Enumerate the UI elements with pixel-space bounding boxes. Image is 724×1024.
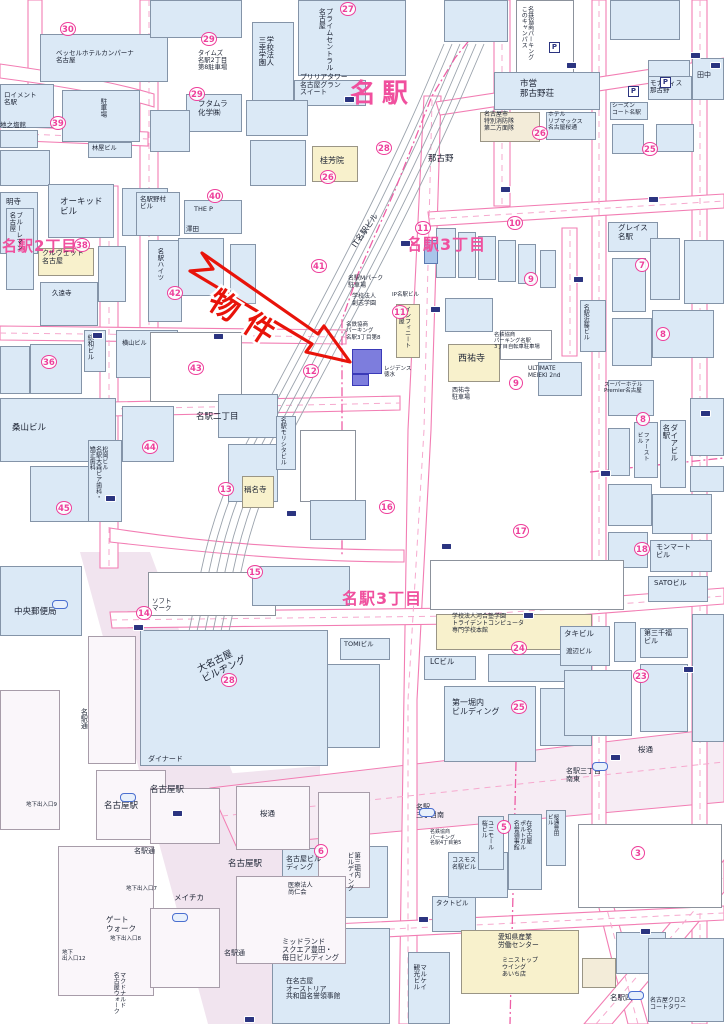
block-number-badge: 39 <box>50 116 66 130</box>
block-number-badge: 45 <box>56 501 72 515</box>
block-number-badge: 18 <box>634 542 650 556</box>
block-number-badge: 36 <box>41 355 57 369</box>
block-number-badge: 26 <box>320 170 336 184</box>
block-number-badge: 12 <box>303 364 319 378</box>
block-numbers-layer: 3029292728262625403938424143364445131211… <box>0 0 724 1024</box>
block-number-badge: 28 <box>221 673 237 687</box>
block-number-badge: 40 <box>207 189 223 203</box>
block-number-badge: 27 <box>340 2 356 16</box>
block-number-badge: 3 <box>631 846 645 860</box>
block-number-badge: 28 <box>376 141 392 155</box>
block-number-badge: 38 <box>74 238 90 252</box>
block-number-badge: 44 <box>142 440 158 454</box>
block-number-badge: 41 <box>311 259 327 273</box>
block-number-badge: 42 <box>167 286 183 300</box>
block-number-badge: 15 <box>247 565 263 579</box>
block-number-badge: 11 <box>415 221 431 235</box>
block-number-badge: 8 <box>636 412 650 426</box>
block-number-badge: 9 <box>524 272 538 286</box>
block-number-badge: 17 <box>513 524 529 538</box>
block-number-badge: 25 <box>511 700 527 714</box>
block-number-badge: 23 <box>633 669 649 683</box>
block-number-badge: 14 <box>136 606 152 620</box>
block-number-badge: 7 <box>635 258 649 272</box>
block-number-badge: 30 <box>60 22 76 36</box>
block-number-badge: 26 <box>532 126 548 140</box>
block-number-badge: 25 <box>642 142 658 156</box>
map-canvas[interactable]: 名駅名駅2丁目名駅3丁目名駅3丁目ベッセルホテルカンパーナ 名古屋学校法人 三幸… <box>0 0 724 1024</box>
block-number-badge: 9 <box>509 376 523 390</box>
block-number-badge: 8 <box>656 327 670 341</box>
block-number-badge: 29 <box>201 32 217 46</box>
block-number-badge: 10 <box>507 216 523 230</box>
block-number-badge: 16 <box>379 500 395 514</box>
block-number-badge: 43 <box>188 361 204 375</box>
block-number-badge: 24 <box>511 641 527 655</box>
block-number-badge: 6 <box>314 844 328 858</box>
block-number-badge: 29 <box>189 87 205 101</box>
block-number-badge: 11 <box>392 305 408 319</box>
block-number-badge: 5 <box>497 820 511 834</box>
block-number-badge: 13 <box>218 482 234 496</box>
